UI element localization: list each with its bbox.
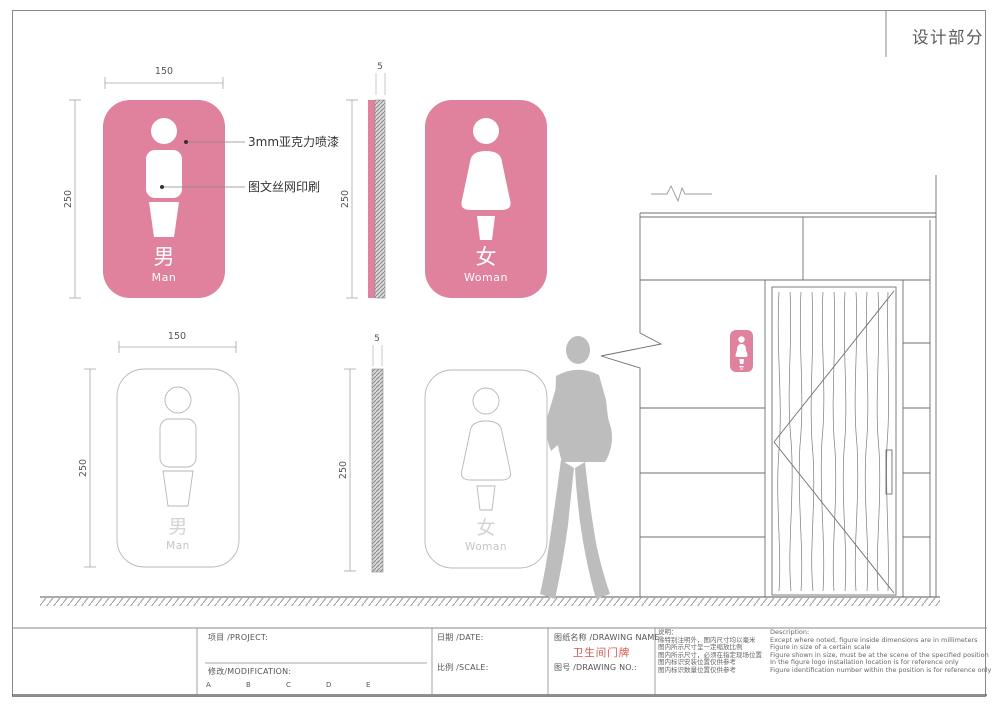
woman-label: Woman — [464, 271, 508, 284]
sign-side-profile-bottom: 5 — [372, 334, 383, 572]
drawing-canvas: 150 250 男 Man 3mm亚克力喷漆 — [0, 0, 1000, 707]
man-char: 男 — [154, 245, 175, 269]
woman-label-outline: Woman — [465, 541, 507, 553]
dim-label-250: 250 — [340, 190, 351, 208]
man-label-outline: Man — [166, 540, 190, 552]
dim-label-150: 150 — [168, 331, 186, 342]
profile-backing-layer — [375, 100, 385, 298]
ground-line — [40, 597, 940, 606]
dim-label-250: 250 — [78, 459, 89, 477]
woman-char-outline: 女 — [476, 517, 495, 539]
sheet-title: 设计部分 — [898, 24, 984, 48]
man-char-outline: 男 — [168, 516, 187, 538]
revision-mark-c: C — [286, 681, 291, 689]
project-label: 项目 /PROJECT: — [208, 632, 268, 643]
dimension-height-man-top: 250 — [63, 100, 81, 298]
woman-char: 女 — [476, 245, 497, 269]
drawing-name-value: 卫生间门牌 — [548, 645, 655, 660]
modification-label: 修改/MODIFICATION: — [208, 666, 291, 677]
dimension-height-profile-bottom: 250 — [338, 369, 356, 571]
drawing-no-label: 图号 /DRAWING NO.: — [554, 662, 637, 673]
notes-en-line: Figure identification number within the … — [770, 667, 985, 675]
scale-label: 比例 /SCALE: — [437, 662, 489, 673]
wall-door-elevation — [601, 175, 936, 597]
wall-left-edge — [601, 213, 661, 597]
profile-acrylic-layer — [368, 100, 375, 298]
dimension-height-profile-top: 250 — [340, 100, 358, 298]
dimension-width-man-bottom: 150 — [119, 331, 236, 353]
dim-label-5: 5 — [377, 62, 383, 72]
callout-silkscreen-label: 图文丝网印刷 — [248, 179, 320, 194]
date-label: 日期 /DATE: — [437, 632, 484, 643]
drawing-name-label: 图纸名称 /DRAWING NAME: — [554, 632, 663, 643]
man-label: Man — [152, 271, 177, 284]
sign-side-profile-top: 5 — [368, 62, 385, 298]
man-sign-outline-view: 男 Man — [117, 369, 239, 567]
notes-cn-line: 图内标识数量位置仅供参考 — [658, 667, 766, 675]
design-drawing-sheet: 150 250 男 Man 3mm亚克力喷漆 — [0, 0, 1000, 707]
woman-sign-front-view: 女 Woman — [425, 100, 547, 298]
revision-mark-d: D — [326, 681, 331, 689]
dim-label-250: 250 — [63, 190, 74, 208]
profile-backing-layer-bottom — [372, 369, 383, 572]
revision-mark-e: E — [366, 681, 370, 689]
dim-label-150: 150 — [155, 66, 173, 77]
callout-acrylic-label: 3mm亚克力喷漆 — [248, 135, 339, 149]
door-wood-grain — [778, 292, 889, 591]
dim-label-250: 250 — [338, 461, 349, 479]
man-sign-front-view: 男 Man — [103, 100, 225, 298]
notes-cn: 说明： 除特别注明外，图内尺寸均以毫米 图内所示尺寸呈一定缩放比例 图内所示尺寸… — [658, 629, 766, 675]
notes-en: Description: Except where noted, figure … — [770, 629, 985, 675]
woman-sign-outline-view: 女 Woman — [425, 370, 547, 568]
wall-mounted-sign — [730, 330, 753, 372]
dim-label-5: 5 — [374, 334, 380, 344]
break-line-symbol — [651, 186, 712, 201]
dimension-height-man-bottom: 250 — [78, 369, 96, 567]
person-silhouette — [540, 336, 612, 599]
revision-mark-b: B — [246, 681, 251, 689]
revision-mark-a: A — [206, 681, 211, 689]
dimension-width-man-top: 150 — [105, 66, 223, 89]
